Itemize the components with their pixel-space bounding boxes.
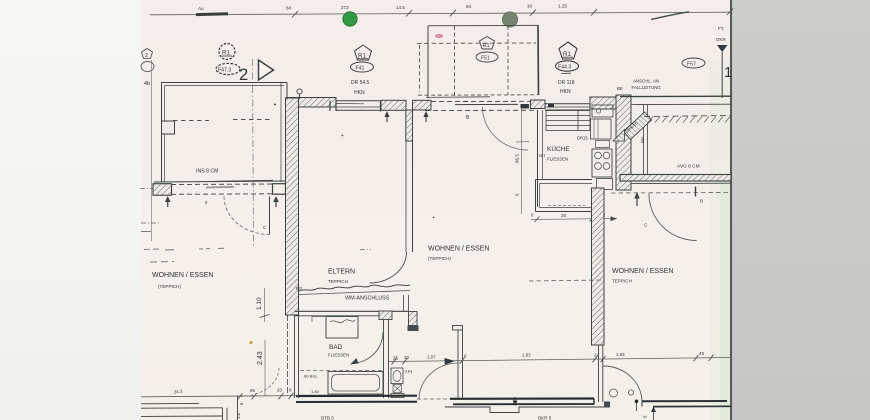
svg-text:TEPPICH: TEPPICH [612, 279, 632, 284]
svg-text:84: 84 [466, 4, 472, 9]
svg-text:1: 1 [724, 64, 732, 81]
svg-text:ANSCHL. AN: ANSCHL. AN [633, 79, 659, 84]
svg-text:BH: BH [640, 137, 645, 143]
svg-text:(TEPPICH): (TEPPICH) [158, 284, 181, 289]
svg-text:86.5: 86.5 [515, 154, 520, 163]
svg-text:F57: F57 [687, 62, 696, 68]
svg-text:BAD: BAD [329, 344, 343, 351]
svg-text:14.5: 14.5 [396, 5, 405, 10]
svg-text:1.25: 1.25 [558, 4, 567, 9]
svg-text:24.3: 24.3 [174, 389, 184, 395]
svg-text:(I.B): (I.B) [405, 369, 413, 374]
svg-text:1.07: 1.07 [427, 355, 436, 360]
svg-text:(TEPPICH): (TEPPICH) [428, 256, 451, 261]
svg-text:HKN: HKN [354, 90, 365, 96]
svg-text:C: C [263, 225, 266, 230]
svg-text:20: 20 [404, 355, 409, 360]
svg-text:25: 25 [393, 356, 398, 361]
svg-text:F47.3: F47.3 [218, 68, 231, 74]
svg-text:2: 2 [145, 53, 148, 59]
svg-text:HKN: HKN [560, 89, 571, 95]
svg-text:84: 84 [286, 6, 292, 11]
svg-text:BE: BE [617, 86, 623, 91]
svg-text:WOHNEN / ESSEN: WOHNEN / ESSEN [152, 272, 213, 279]
svg-text:20: 20 [277, 388, 282, 393]
svg-text:B: B [700, 199, 703, 204]
svg-text:DKR: DKR [716, 37, 726, 42]
svg-text:INS 8 CM: INS 8 CM [196, 169, 218, 175]
svg-text:24: 24 [594, 353, 599, 358]
svg-text:F44.3: F44.3 [558, 65, 571, 71]
svg-text:R1: R1 [222, 50, 230, 57]
svg-text:1.10: 1.10 [256, 297, 263, 310]
svg-text:BTB 5: BTB 5 [321, 416, 334, 420]
svg-text:DR 54.5: DR 54.5 [351, 80, 370, 86]
svg-text:1.83: 1.83 [616, 352, 625, 357]
svg-text:DR 118: DR 118 [558, 80, 575, 86]
svg-text:AVG 8 CM: AVG 8 CM [677, 164, 700, 170]
svg-text:2: 2 [239, 66, 248, 84]
svg-text:4b: 4b [144, 81, 150, 87]
svg-text:WOHNEN / ESSEN: WOHNEN / ESSEN [428, 246, 489, 253]
svg-text:+: + [432, 215, 435, 221]
svg-text:FLIESSEN: FLIESSEN [328, 353, 349, 358]
svg-text:B/2: B/2 [296, 286, 303, 291]
svg-text:FLIESSEN: FLIESSEN [547, 157, 568, 162]
svg-text:FT.: FT. [718, 26, 724, 31]
svg-text:ELTERN: ELTERN [328, 269, 355, 276]
svg-text:10: 10 [527, 4, 533, 9]
svg-text:WOHNEN / ESSEN: WOHNEN / ESSEN [612, 268, 673, 275]
svg-text:1.5: 1.5 [236, 412, 241, 419]
svg-text:KÜCHE: KÜCHE [547, 145, 570, 153]
svg-text:2.43: 2.43 [257, 351, 264, 365]
svg-text:.80 BGL: .80 BGL [303, 374, 318, 379]
svg-text:25: 25 [561, 213, 567, 218]
svg-text:F41: F41 [356, 66, 365, 72]
svg-text:Au: Au [198, 6, 204, 11]
svg-text:F51: F51 [481, 56, 490, 62]
svg-text:5: 5 [515, 193, 520, 196]
svg-text:49: 49 [699, 351, 704, 356]
svg-text:BKR 5: BKR 5 [538, 416, 552, 420]
svg-text:1.45: 1.45 [311, 389, 320, 394]
svg-text:85: 85 [250, 388, 255, 393]
svg-text:1.93: 1.93 [522, 353, 531, 358]
svg-text:SET: SET [539, 154, 547, 158]
svg-text:FALLLEITUNG: FALLLEITUNG [632, 85, 662, 90]
svg-text:WM-ANSCHLUSS: WM-ANSCHLUSS [345, 296, 390, 302]
svg-text:DR15: DR15 [577, 136, 588, 141]
svg-text:+: + [341, 133, 344, 139]
svg-text:R1: R1 [483, 43, 490, 49]
svg-text:TEPPICH: TEPPICH [328, 279, 348, 284]
svg-text:272: 272 [341, 5, 349, 10]
